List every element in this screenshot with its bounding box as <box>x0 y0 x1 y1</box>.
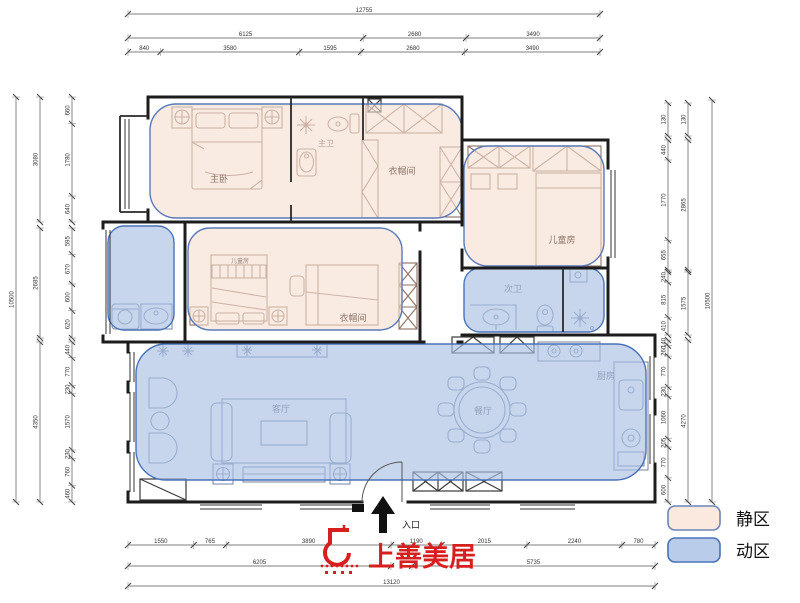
dim-label: 10500 <box>706 292 712 309</box>
dim-label: 1550 <box>154 539 168 545</box>
zone-quiet-kids <box>464 146 604 266</box>
dim-label: 1770 <box>662 193 668 207</box>
legend: 静区 动区 <box>668 506 770 562</box>
entrance-label: 入口 <box>402 520 420 530</box>
floor-plan: 主卧 主卫 衣帽间 儿童房 儿童房 衣帽间 次卫 客厅 餐厅 厨房 127556… <box>0 0 800 603</box>
room-label-master-bedroom: 主卧 <box>210 173 228 184</box>
dim-label: 4270 <box>682 414 688 428</box>
dim-label: 130 <box>662 114 668 125</box>
dim-label: 440 <box>66 344 72 355</box>
dim-label: 3080 <box>34 152 40 166</box>
dim-label: 3490 <box>526 46 540 52</box>
zone-quiet-master <box>150 104 462 218</box>
logo-text: 上善美居 <box>368 541 476 572</box>
entrance-arrow-icon <box>371 496 395 533</box>
dim-label: 460 <box>66 488 72 499</box>
dim-label: 2680 <box>408 32 422 38</box>
dim-label: 770 <box>66 366 72 377</box>
dim-label: 2865 <box>682 198 688 212</box>
logo: 上善美居 <box>321 525 476 574</box>
logo-mark-icon <box>325 530 349 565</box>
dim-label: 205 <box>662 437 668 448</box>
dim-label: 2680 <box>406 46 420 52</box>
zones <box>108 104 646 480</box>
legend-quiet-label: 静区 <box>736 510 770 529</box>
dim-label: 770 <box>662 366 668 377</box>
legend-active-label: 动区 <box>736 542 770 561</box>
room-label-master-bath: 主卫 <box>318 138 334 148</box>
dim-label: 780 <box>633 539 644 545</box>
dim-label: 640 <box>66 203 72 214</box>
dim-label: 1780 <box>66 153 72 167</box>
dim-label: 600 <box>66 292 72 303</box>
dim-label: 2240 <box>568 539 582 545</box>
dim-label: 620 <box>66 319 72 330</box>
zone-active-balcony <box>108 226 174 330</box>
dim-label: 3490 <box>526 32 540 38</box>
dim-label: 815 <box>662 294 668 305</box>
dim-label: 4350 <box>34 415 40 429</box>
dim-label: 840 <box>139 46 150 52</box>
room-label-living-room: 客厅 <box>272 403 290 414</box>
dim-label: 600 <box>662 484 668 495</box>
zone-quiet-bedroom2 <box>188 228 402 330</box>
dim-label: 10500 <box>10 290 16 307</box>
dim-label: 3890 <box>302 539 316 545</box>
room-label-dining-room: 餐厅 <box>474 405 492 416</box>
dim-label: 12755 <box>356 8 373 14</box>
bed-label-kids: 儿童房 <box>231 257 249 265</box>
legend-quiet-swatch <box>668 506 720 530</box>
dim-label: 770 <box>662 457 668 468</box>
dim-label: 765 <box>205 539 216 545</box>
dim-label: 13120 <box>383 580 400 586</box>
dim-label: 1575 <box>682 296 688 310</box>
dim-label: 130 <box>682 114 688 125</box>
dim-label: 5735 <box>527 560 541 566</box>
dim-label: 230 <box>66 384 72 395</box>
dim-label: 6205 <box>253 560 267 566</box>
room-label-kitchen: 厨房 <box>597 370 615 381</box>
dim-label: 1060 <box>662 410 668 424</box>
dim-label: 760 <box>66 466 72 477</box>
dim-label: 6125 <box>239 32 253 38</box>
dim-label: 260 <box>662 345 668 356</box>
dim-label: 670 <box>66 264 72 275</box>
dim-label: 440 <box>662 144 668 155</box>
room-label-kids-room: 儿童房 <box>548 234 575 245</box>
room-label-second-bath: 次卫 <box>504 283 522 294</box>
dim-label: 1595 <box>323 46 337 52</box>
dim-label: 2015 <box>478 539 492 545</box>
dim-label: 410 <box>662 321 668 332</box>
room-label-cloakroom-top: 衣帽间 <box>388 165 415 176</box>
zone-active-living <box>136 344 646 480</box>
zone-active-bath <box>464 268 604 332</box>
dim-label: 240 <box>662 271 668 282</box>
legend-active-swatch <box>668 538 720 562</box>
dim-label: 1570 <box>66 414 72 428</box>
dim-label: 2685 <box>34 276 40 290</box>
room-label-cloakroom-mid: 衣帽间 <box>339 312 366 323</box>
dim-label: 655 <box>662 249 668 260</box>
dim-label: 3580 <box>223 46 237 52</box>
dim-label: 230 <box>66 448 72 459</box>
dim-label: 595 <box>66 236 72 247</box>
dim-label: 230 <box>662 386 668 397</box>
dim-label: 660 <box>66 105 72 116</box>
